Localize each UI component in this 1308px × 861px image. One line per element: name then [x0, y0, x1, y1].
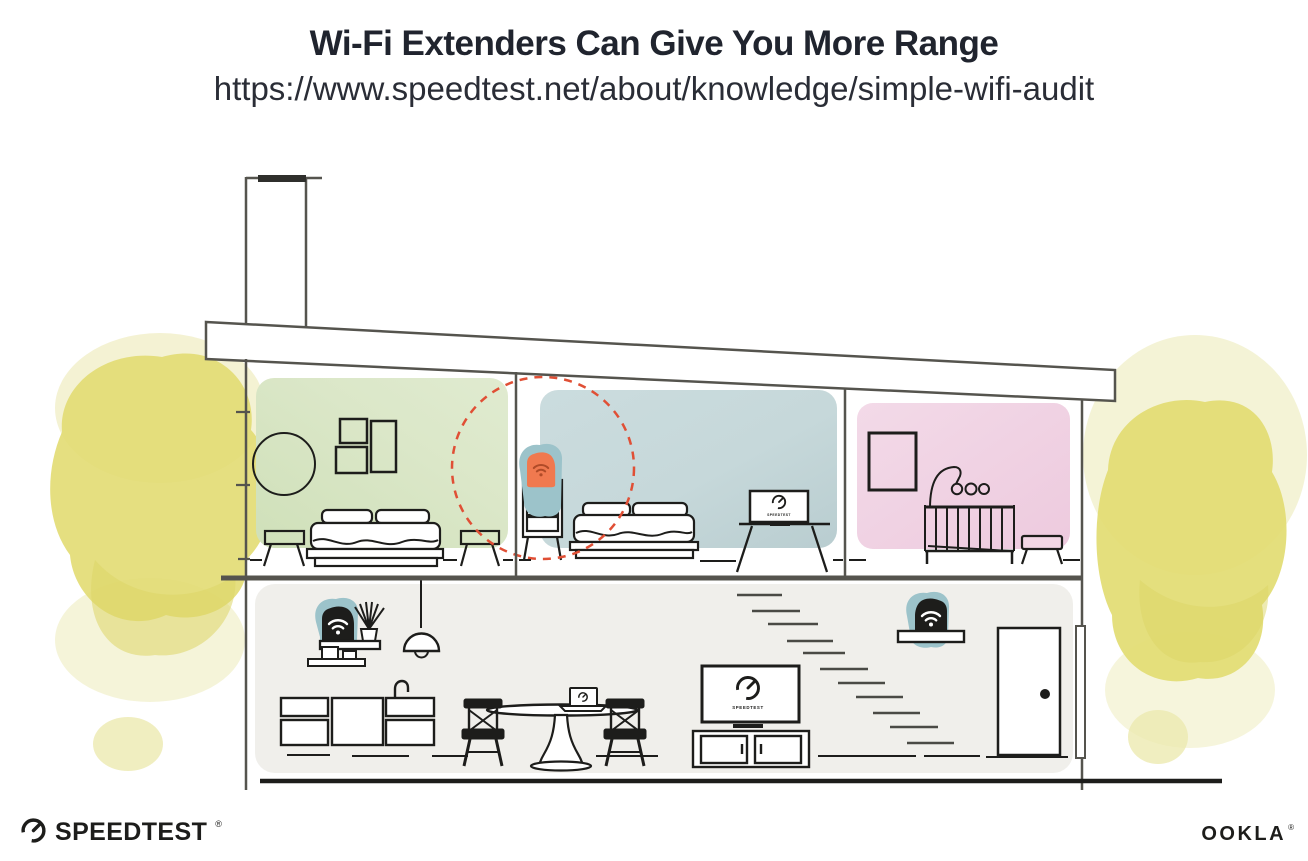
speedtest-gauge-icon — [20, 817, 47, 844]
ookla-reg-mark: ® — [1288, 823, 1294, 832]
tv-screen-label: SPEEDTEST — [767, 513, 791, 517]
speedtest-reg-mark: ® — [215, 819, 222, 829]
house-illustration: SPEEDTEST — [0, 0, 1308, 861]
ground-floor: SPEEDTEST — [255, 580, 1073, 773]
infographic-page: Wi-Fi Extenders Can Give You More Range … — [0, 0, 1308, 861]
bedroom-green — [253, 378, 508, 566]
bed — [570, 503, 698, 558]
bed — [307, 510, 443, 566]
speedtest-logo: SPEEDTEST ® — [20, 817, 222, 847]
chimney — [246, 175, 322, 329]
front-door — [998, 628, 1060, 755]
tv-living-room: SPEEDTEST — [693, 666, 809, 767]
nursery-pink-bg — [857, 403, 1070, 549]
bush-left-main — [50, 353, 273, 621]
stool — [1022, 536, 1062, 564]
bush-left — [50, 333, 273, 771]
bedroom-blue: SPEEDTEST — [519, 390, 837, 572]
downspout — [1076, 626, 1085, 758]
ookla-logo: OOKLA ® — [1201, 822, 1294, 846]
tv-console — [693, 731, 809, 767]
bush-right — [1083, 335, 1307, 764]
nursery-pink — [857, 403, 1070, 564]
speedtest-wordmark: SPEEDTEST — [55, 817, 207, 847]
ookla-wordmark: OOKLA — [1201, 822, 1286, 846]
door-knob-icon — [1040, 689, 1050, 699]
tv-screen-label: SPEEDTEST — [732, 705, 764, 710]
